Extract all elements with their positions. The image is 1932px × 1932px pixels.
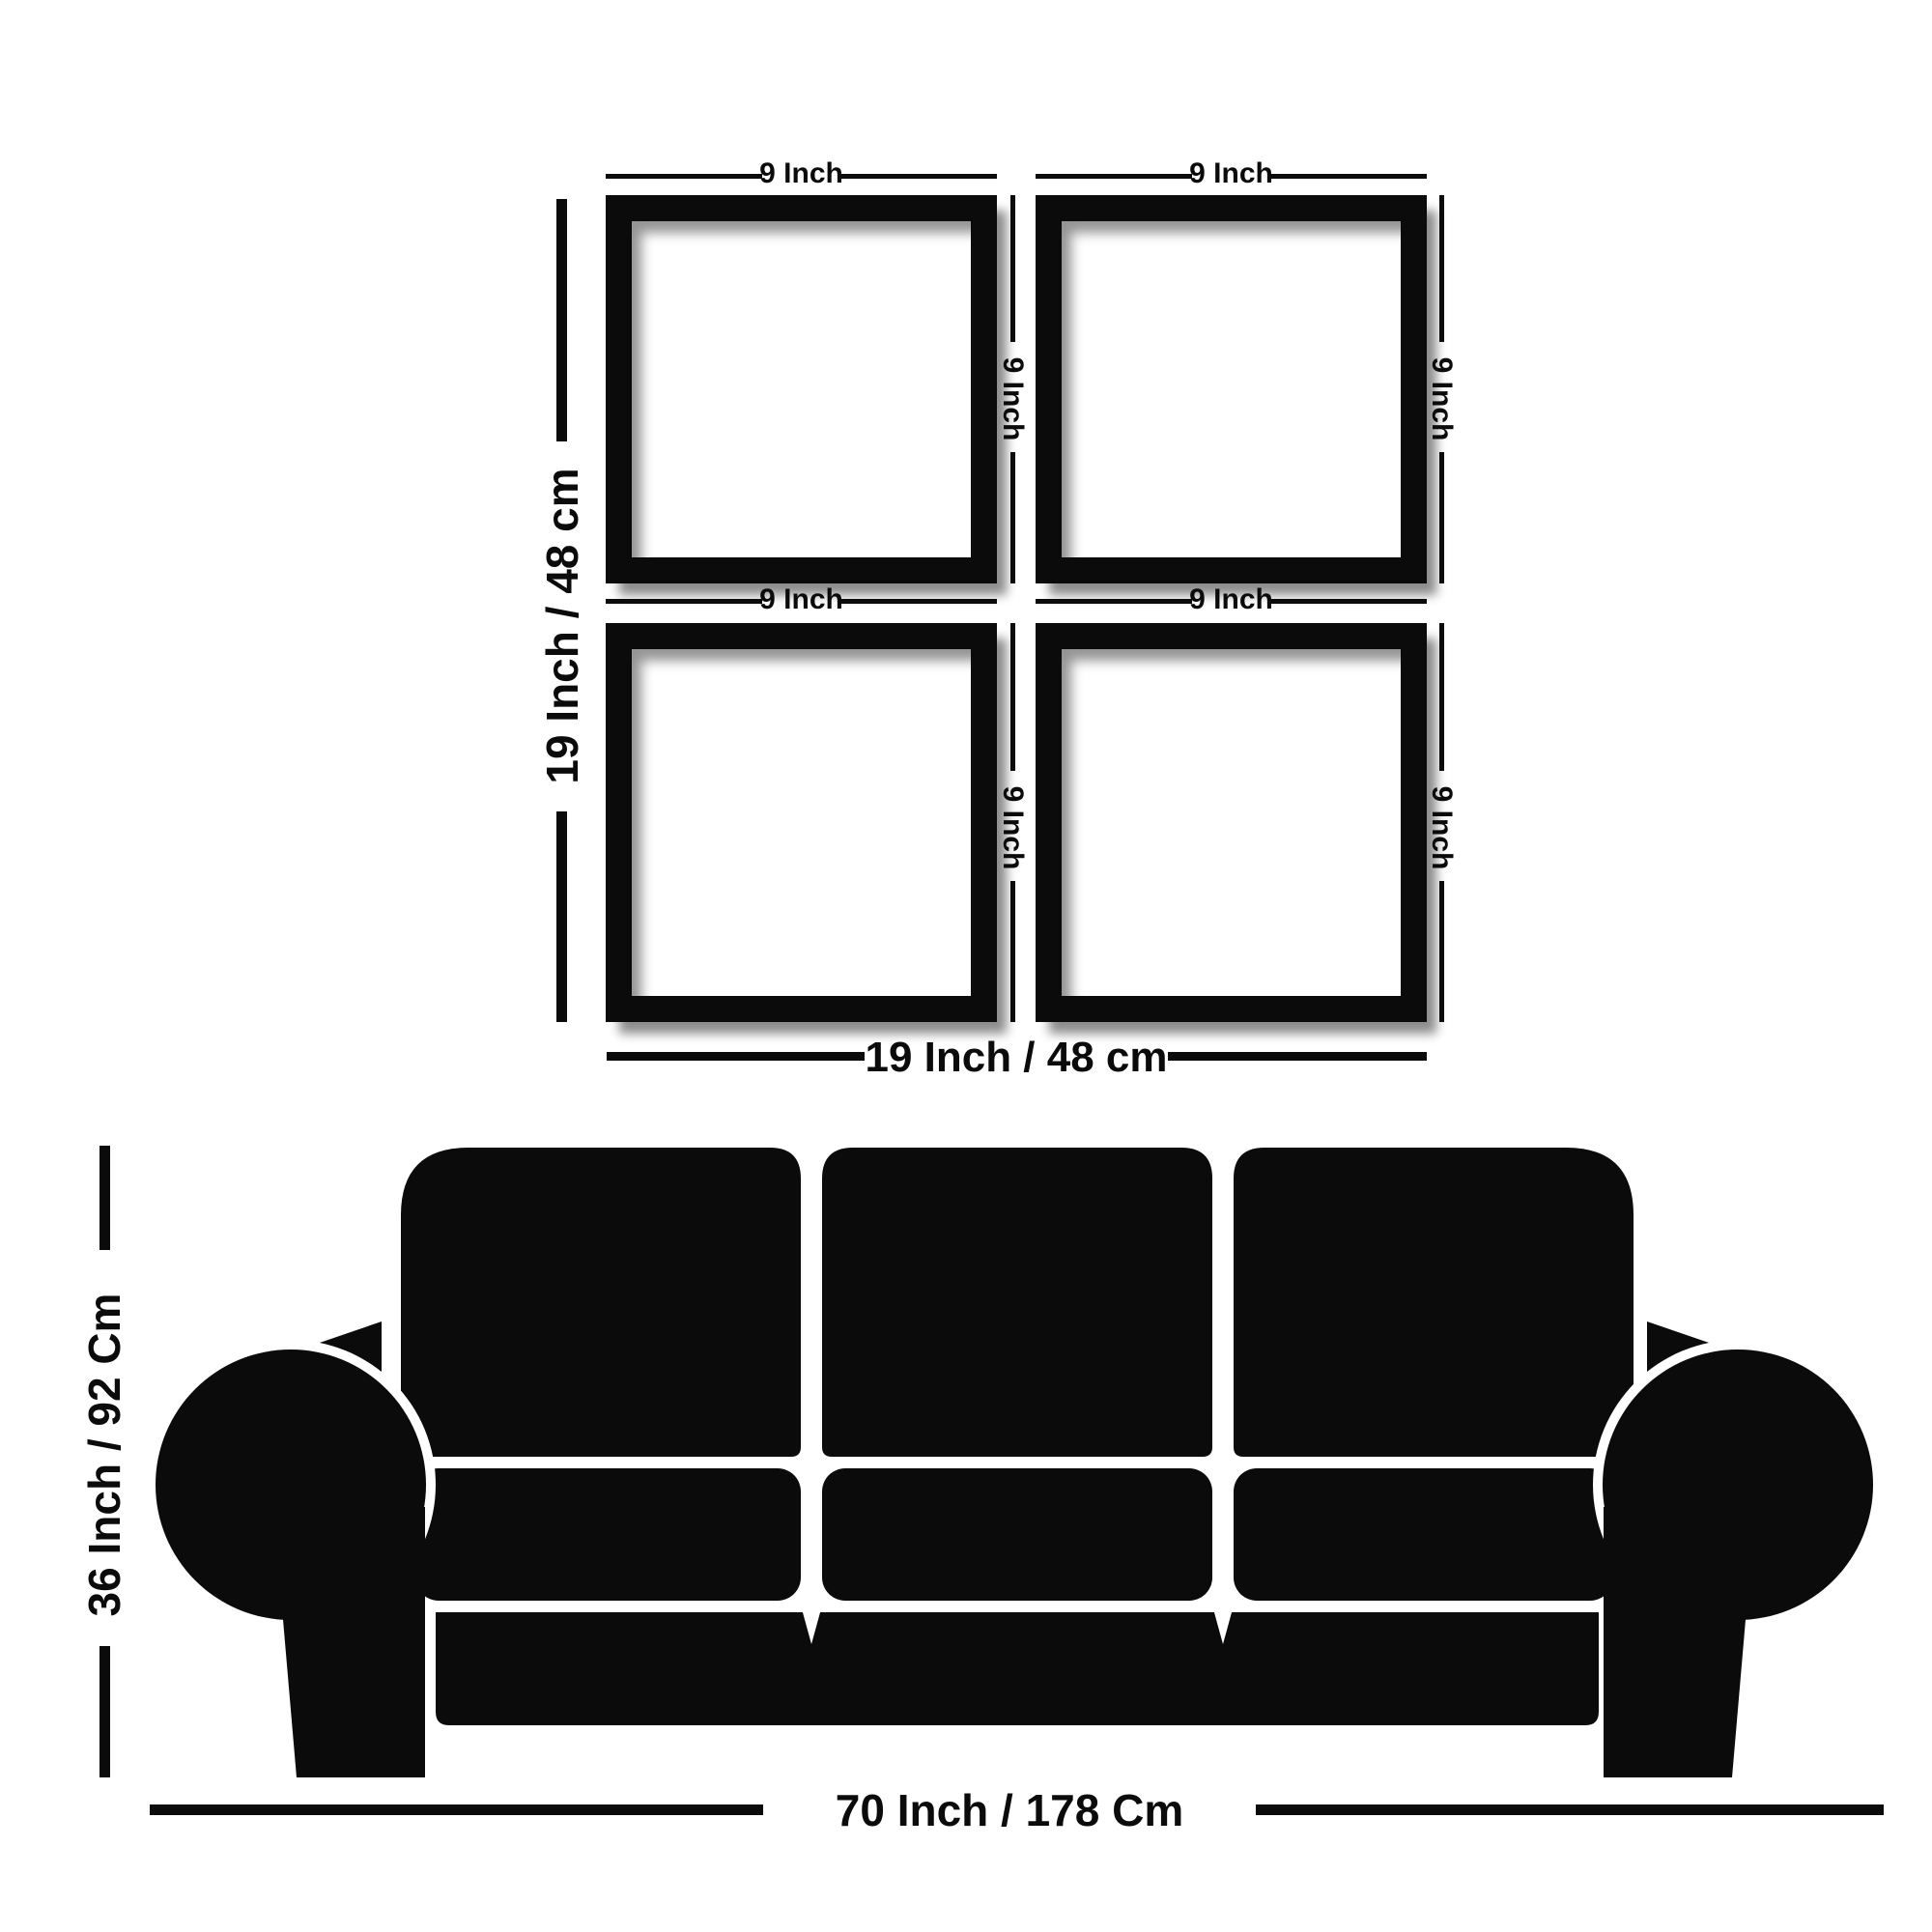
product-dimension-diagram: 9 Inch 9 Inch 9 Inch 9 Inch 9 Inch 9 Inc… xyxy=(0,0,1932,1932)
sofa-seat-cushion-1 xyxy=(415,1468,801,1601)
sofa-height-line-top xyxy=(99,1146,110,1250)
sofa-base xyxy=(436,1612,1599,1725)
sofa-back-cushion-3 xyxy=(1234,1148,1634,1457)
sofa-back-cushion-1 xyxy=(401,1148,801,1457)
sofa-seat-cushion-2 xyxy=(822,1468,1212,1601)
sofa-width-dash-left xyxy=(150,1804,763,1815)
sofa-silhouette xyxy=(0,0,1932,1932)
sofa-height-line-bottom xyxy=(99,1646,110,1777)
sofa-seat-cushion-3 xyxy=(1234,1468,1613,1601)
sofa-back-cushion-2 xyxy=(822,1148,1212,1457)
sofa-arm-left xyxy=(156,1350,426,1620)
sofa-width-label: 70 Inch / 178 Cm xyxy=(763,1785,1256,1835)
sofa-arm-right xyxy=(1603,1350,1873,1620)
sofa-height-label: 36 Inch / 92 Cm xyxy=(79,1252,129,1658)
sofa-width-dash-right xyxy=(1256,1804,1884,1815)
